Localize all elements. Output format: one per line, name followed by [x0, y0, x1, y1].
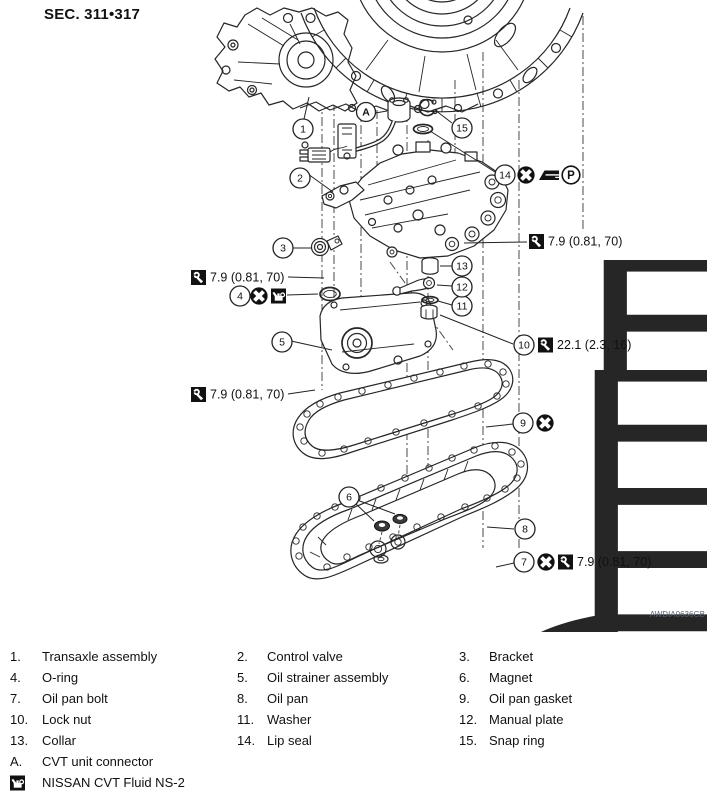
torque-wrench-icon [191, 270, 206, 285]
svg-text:14: 14 [499, 170, 511, 182]
legend-item-number: 10. [10, 712, 42, 727]
svg-text:15: 15 [456, 123, 468, 135]
svg-text:7: 7 [521, 557, 527, 569]
legend-item-number: 11. [237, 712, 267, 727]
svg-text:12: 12 [456, 282, 468, 294]
legend-item-number: 2. [237, 649, 267, 664]
legend-item-number: A. [10, 754, 42, 769]
legend-item-label: Oil pan [267, 691, 459, 706]
legend-row: 4. O-ring 5. Oil strainer assembly 6. Ma… [10, 667, 700, 688]
legend-item-number: 7. [10, 691, 42, 706]
legend-row: A. CVT unit connector [10, 751, 700, 772]
legend-row: 1. Transaxle assembly 2. Control valve 3… [10, 646, 700, 667]
replace-icon [537, 553, 554, 570]
legend-item-label: Bracket [489, 649, 700, 664]
legend-item-number: 15. [459, 733, 489, 748]
legend-item-number: 14. [237, 733, 267, 748]
svg-text:6: 6 [346, 492, 352, 504]
callout-7: 7 [514, 552, 534, 572]
legend-row: 13. Collar 14. Lip seal 15. Snap ring [10, 730, 700, 751]
legend-row: 7. Oil pan bolt 8. Oil pan 9. Oil pan ga… [10, 688, 700, 709]
oil-strainer [320, 293, 436, 374]
legend-item-label: O-ring [42, 670, 237, 685]
svg-text:7.9 (0.81, 70): 7.9 (0.81, 70) [210, 388, 284, 402]
cvt-fluid-icon [10, 775, 25, 791]
legend-fluid-label: NISSAN CVT Fluid NS-2 [42, 775, 185, 790]
legend-item-label: Transaxle assembly [42, 649, 237, 664]
replace-icon [517, 166, 534, 183]
legend-item-label: Snap ring [489, 733, 700, 748]
legend-item-label: Manual plate [489, 712, 700, 727]
torque-label-control-valve-left: 7.9 (0.81, 70) [191, 270, 284, 285]
bracket [312, 236, 343, 256]
oil-pan-gasket [293, 360, 513, 459]
torque-wrench-icon [191, 387, 206, 402]
svg-text:9: 9 [520, 418, 526, 430]
svg-text:8: 8 [522, 524, 528, 536]
svg-text:22.1 (2.3, 16): 22.1 (2.3, 16) [557, 338, 631, 352]
svg-text:7.9 (0.81, 70): 7.9 (0.81, 70) [548, 235, 622, 249]
oil-strainer-bolt [509, 370, 707, 632]
torque-wrench-icon [558, 555, 573, 570]
callout-A: A [357, 103, 376, 122]
svg-text:4: 4 [237, 291, 243, 303]
legend-item-label: Lip seal [267, 733, 459, 748]
svg-text:11: 11 [457, 301, 468, 313]
svg-text:7.9 (0.81, 70): 7.9 (0.81, 70) [210, 271, 284, 285]
legend-item-number: 6. [459, 670, 489, 685]
legend-item-label: Oil pan bolt [42, 691, 237, 706]
legend-item-number: 3. [459, 649, 489, 664]
torque-label-lock-nut: 22.1 (2.3, 16) [538, 338, 631, 353]
torque-label-control-valve-right: 7.9 (0.81, 70) [529, 234, 622, 249]
legend-item-number: 9. [459, 691, 489, 706]
callout-2: 2 [290, 168, 310, 188]
svg-text:3: 3 [280, 243, 286, 255]
callout-12: 12 [452, 277, 472, 297]
callout-6: 6 [339, 487, 359, 507]
legend-item-number: 4. [10, 670, 42, 685]
callout-4: 4 [230, 286, 250, 306]
legend-item-label: CVT unit connector [42, 754, 442, 769]
svg-text:13: 13 [456, 261, 468, 273]
callout-5: 5 [272, 332, 292, 352]
legend-item-label: Collar [42, 733, 237, 748]
seal-driver-icon [539, 171, 559, 181]
legend-item-number: 8. [237, 691, 267, 706]
svg-text:1: 1 [300, 124, 306, 136]
legend-item-label: Oil strainer assembly [267, 670, 459, 685]
torque-label-oil-pan-bolt: 7.9 (0.81, 70) [558, 555, 651, 570]
legend-item-label: Control valve [267, 649, 459, 664]
callout-15: 15 [452, 118, 472, 138]
callout-3: 3 [273, 238, 293, 258]
torque-label-strainer-bolt: 7.9 (0.81, 70) [191, 387, 284, 402]
control-valve [322, 142, 508, 258]
callout-11: 11 [452, 296, 472, 316]
legend-item-label: Lock nut [42, 712, 237, 727]
petroleum-jelly-icon: P [562, 166, 580, 184]
exploded-view-diagram: 1 2 3 4 5 6 7 8 9 10 11 12 13 14 15 A P … [0, 0, 707, 632]
callout-8: 8 [515, 519, 535, 539]
replace-icon [250, 287, 267, 304]
torque-wrench-icon [538, 338, 553, 353]
lip-seal [414, 125, 433, 134]
svg-text:A: A [362, 107, 370, 119]
svg-text:P: P [567, 170, 575, 182]
legend-item-label: Washer [267, 712, 459, 727]
manual-page: SEC. 311•317 [0, 0, 707, 806]
legend-item-number: 13. [10, 733, 42, 748]
legend-item-number: 1. [10, 649, 42, 664]
parts-legend: 1. Transaxle assembly 2. Control valve 3… [10, 646, 700, 793]
callout-14: 14 [495, 165, 515, 185]
callout-1: 1 [293, 119, 313, 139]
replace-icon [536, 414, 553, 431]
callout-13: 13 [452, 256, 472, 276]
lock-nut [421, 305, 437, 319]
torque-wrench-icon [529, 234, 544, 249]
legend-row: 10. Lock nut 11. Washer 12. Manual plate [10, 709, 700, 730]
legend-item-label: Magnet [489, 670, 700, 685]
figure-id: AWDIA0636GB [650, 610, 705, 619]
legend-item-label: Oil pan gasket [489, 691, 700, 706]
collar [422, 258, 438, 274]
legend-item-number: 5. [237, 670, 267, 685]
cvt-fluid-icon [271, 289, 286, 304]
oil-pan [291, 442, 528, 579]
legend-fluid-row: NISSAN CVT Fluid NS-2 [10, 772, 700, 793]
svg-text:2: 2 [297, 173, 303, 185]
legend-item-number: 12. [459, 712, 489, 727]
callout-9: 9 [513, 413, 533, 433]
svg-text:10: 10 [518, 340, 530, 352]
callout-10: 10 [514, 335, 534, 355]
svg-text:5: 5 [279, 337, 285, 349]
transaxle-assembly [215, 0, 583, 113]
svg-text:7.9 (0.81, 70): 7.9 (0.81, 70) [577, 555, 651, 569]
